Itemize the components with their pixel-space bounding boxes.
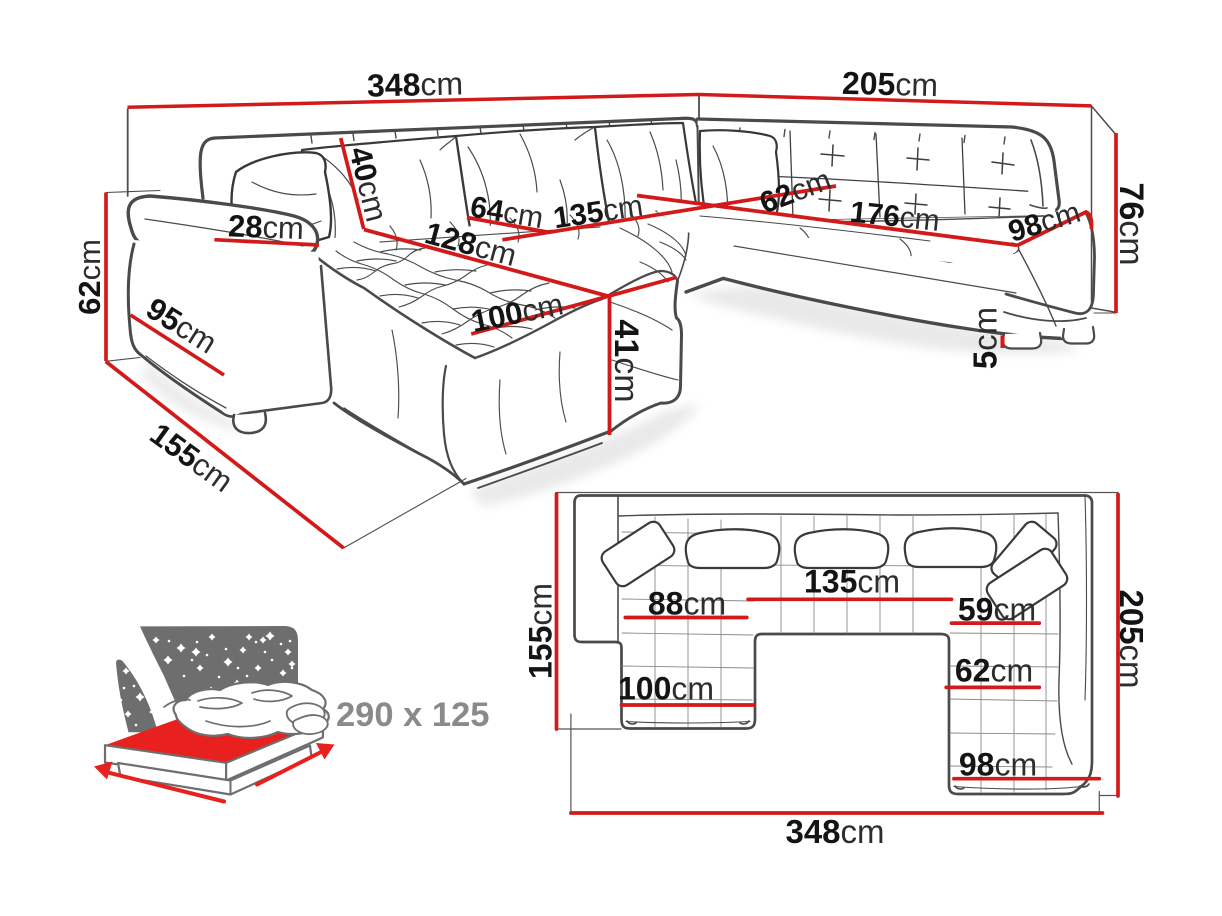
svg-text:100cm: 100cm [618, 671, 714, 707]
svg-text:290 x 125: 290 x 125 [336, 696, 489, 734]
svg-text:155cm: 155cm [523, 583, 559, 679]
svg-text:348cm: 348cm [367, 65, 464, 103]
svg-text:205cm: 205cm [842, 65, 939, 103]
svg-text:62cm: 62cm [955, 653, 1033, 689]
svg-text:88cm: 88cm [648, 586, 726, 622]
svg-text:28cm: 28cm [227, 208, 304, 246]
svg-text:98cm: 98cm [959, 747, 1037, 783]
svg-text:59cm: 59cm [958, 592, 1036, 628]
svg-text:205cm: 205cm [1113, 589, 1150, 688]
svg-text:348cm: 348cm [785, 813, 884, 850]
svg-text:135cm: 135cm [804, 564, 900, 600]
svg-text:62cm: 62cm [72, 239, 107, 315]
svg-text:5cm: 5cm [966, 307, 1003, 369]
svg-text:41cm: 41cm [607, 319, 645, 402]
svg-text:76cm: 76cm [1112, 182, 1150, 265]
